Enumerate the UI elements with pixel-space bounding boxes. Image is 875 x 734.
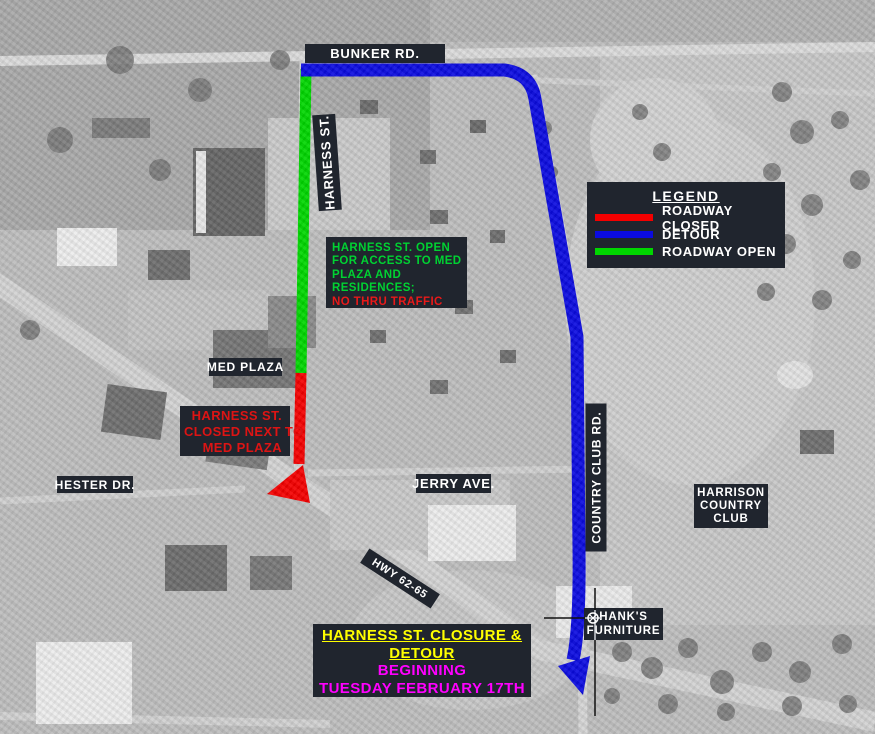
harness-open-note: HARNESS ST. OPEN FOR ACCESS TO MED PLAZA… (326, 237, 467, 308)
title-line-beginning: BEGINNING (313, 662, 531, 680)
bunker-rd-label: BUNKER RD. (305, 44, 445, 63)
roadway-open-label: ROADWAY OPEN (662, 244, 776, 259)
open-note-line: PLAZA AND (332, 269, 467, 282)
roadway-open-swatch (595, 248, 653, 255)
open-note-line: FOR ACCESS TO MED (332, 255, 467, 268)
harness-closed-note: HARNESS ST. CLOSED NEXT TO MED PLAZA (180, 406, 290, 456)
legend-row-closed: ROADWAY CLOSED (587, 209, 785, 226)
title-line-closure: HARNESS ST. CLOSURE & (313, 627, 531, 645)
roadway-closed-line (299, 373, 301, 464)
open-note-warning-line: NO THRU TRAFFIC (332, 296, 467, 309)
hanks-label-line: FURNITURE (587, 624, 661, 638)
jerry-ave-label-text: JERRY AVE. (412, 476, 495, 491)
legend-box: LEGEND ROADWAY CLOSED DETOUR ROADWAY OPE… (587, 182, 785, 268)
title-line-date: TUESDAY FEBRUARY 17TH (313, 680, 531, 698)
closed-note-line: MED PLAZA (184, 440, 282, 456)
detour-map: BUNKER RD. HARNESS ST. LEGEND ROADWAY CL… (0, 0, 875, 734)
roadway-open-line (301, 69, 306, 373)
hanks-furniture-label: HANK'S FURNITURE (584, 608, 663, 640)
jerry-ave-label: JERRY AVE. (416, 474, 491, 493)
hester-dr-label-text: HESTER DR. (55, 478, 136, 492)
country-club-rd-label: COUNTRY CLUB RD. (586, 404, 607, 552)
harness-st-label-text: HARNESS ST. (316, 115, 338, 211)
detour-label: DETOUR (662, 227, 720, 242)
legend-row-detour: DETOUR (587, 226, 785, 243)
title-line-detour: DETOUR (313, 645, 531, 663)
open-note-line: HARNESS ST. OPEN (332, 242, 467, 255)
med-plaza-label-text: MED PLAZA (207, 360, 284, 374)
med-plaza-label: MED PLAZA (209, 358, 282, 376)
map-title-box: HARNESS ST. CLOSURE & DETOUR BEGINNING T… (313, 624, 531, 697)
country-club-rd-label-text: COUNTRY CLUB RD. (589, 411, 603, 543)
closed-note-line: HARNESS ST. (184, 408, 282, 424)
open-note-line: RESIDENCES; (332, 282, 467, 295)
harrison-label-line: HARRISON (697, 487, 765, 500)
roadway-closed-swatch (595, 214, 653, 221)
hester-dr-label: HESTER DR. (57, 476, 133, 493)
hanks-label-line: HANK'S (599, 610, 647, 624)
harrison-label-line: COUNTRY (700, 500, 762, 513)
harrison-label-line: CLUB (713, 513, 748, 526)
legend-row-open: ROADWAY OPEN (587, 243, 785, 260)
detour-swatch (595, 231, 653, 238)
closed-note-line: CLOSED NEXT TO (184, 424, 282, 440)
harrison-country-club-label: HARRISON COUNTRY CLUB (694, 484, 768, 528)
bunker-rd-label-text: BUNKER RD. (330, 46, 420, 61)
